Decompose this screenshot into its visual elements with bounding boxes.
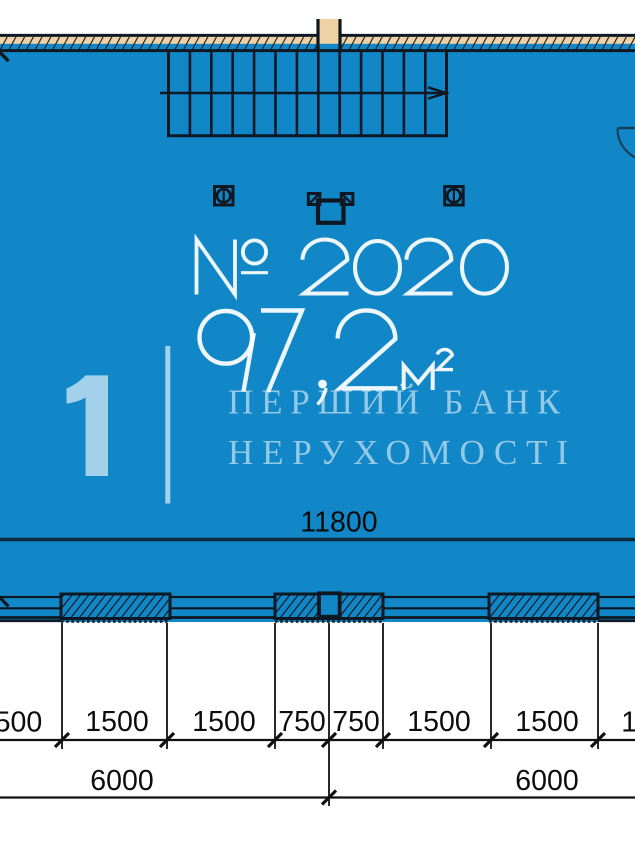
svg-text:1500: 1500 (85, 706, 148, 738)
svg-text:1500: 1500 (192, 706, 255, 738)
svg-text:6000: 6000 (515, 765, 578, 797)
svg-text:НЕРУХОМОСТІ: НЕРУХОМОСТІ (228, 433, 577, 472)
svg-text:1500: 1500 (515, 706, 578, 738)
svg-text:11800: 11800 (300, 507, 377, 539)
svg-text:750: 750 (332, 706, 380, 738)
svg-text:6000: 6000 (90, 765, 153, 797)
svg-text:1500: 1500 (621, 707, 635, 739)
svg-text:1500: 1500 (407, 706, 470, 738)
svg-text:ПЕРШИЙ БАНК: ПЕРШИЙ БАНК (228, 383, 568, 422)
svg-text:1500: 1500 (0, 707, 42, 739)
svg-text:750: 750 (278, 706, 326, 738)
